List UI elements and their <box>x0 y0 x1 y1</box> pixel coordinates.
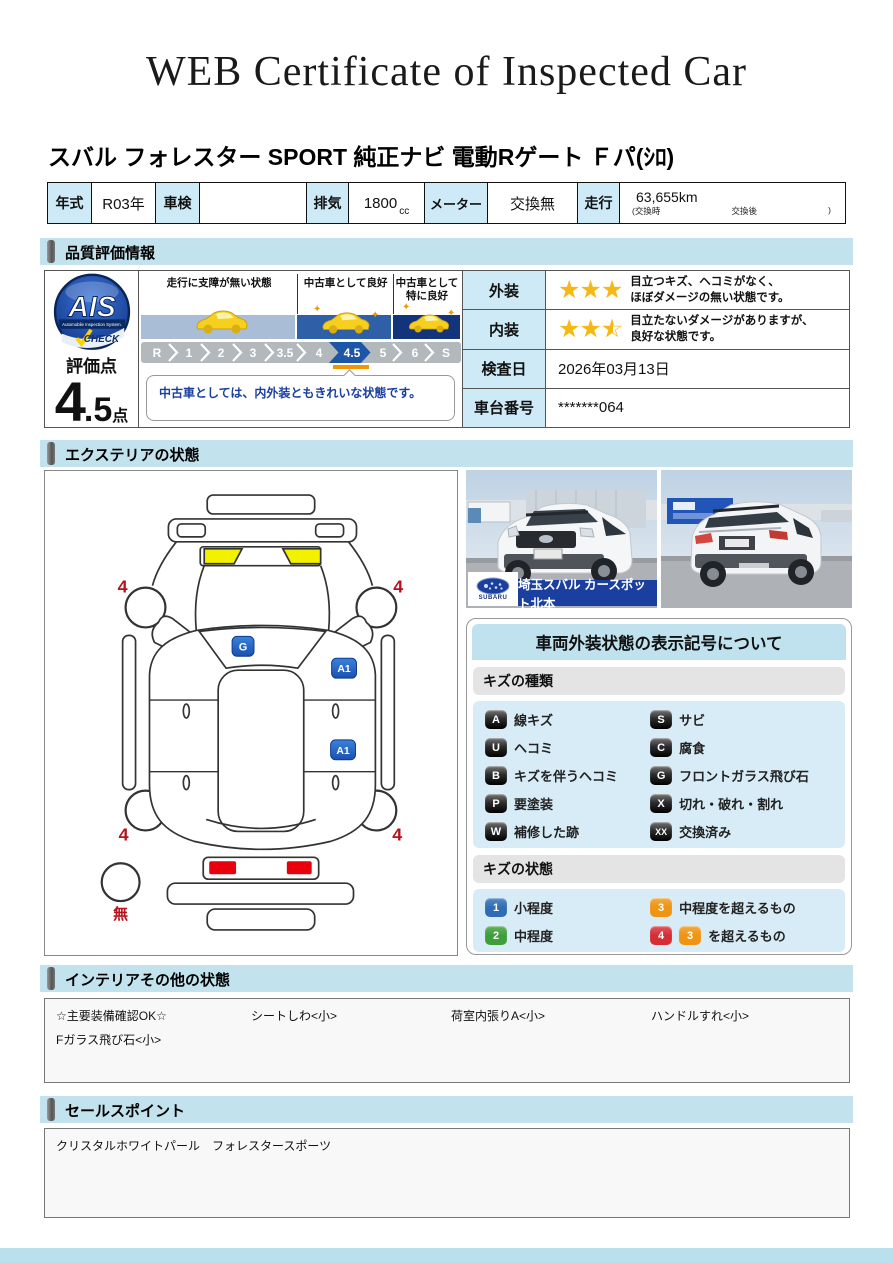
spare-tire-mark: 無 <box>113 905 128 923</box>
interior-text-line1: 目立たないダメージがありますが、 <box>630 315 813 327</box>
ais-score-panel: AIS Automobile Inspection System. CHECK … <box>45 271 139 427</box>
legend-item: A線キズ <box>485 710 650 729</box>
grade-tick: 3.5 <box>277 346 294 360</box>
grade-tick: 3 <box>250 346 257 360</box>
vin-value: *******064 <box>546 389 849 427</box>
glass-damage-badge: G <box>239 641 248 653</box>
exterior-rating-row: 外装 ★★★ 目立つキズ、ヘコミがなく、 ほぼダメージの無い状態です。 <box>463 271 849 310</box>
severity-badge: 3 <box>679 926 701 945</box>
tire-mark-rear-left: 4 <box>119 824 129 844</box>
dealer-caption: 埼玉スバル カースポット北本 <box>518 580 657 606</box>
damage-code-badge: W <box>485 822 507 841</box>
legend-item: Uヘコミ <box>485 738 650 757</box>
spec-table: 年式 R03年 車検 排気 1800 cc メーター 交換無 走行 63,655… <box>47 182 846 224</box>
legend-item-label: 線キズ <box>514 710 553 729</box>
interior-stars: ★★☆★ <box>558 317 622 342</box>
spec-inspection-value <box>200 183 307 223</box>
zone-label-2: 中古車として良好 <box>297 274 393 314</box>
vehicle-photos: SUBARU 埼玉スバル カースポット北本 <box>466 470 852 608</box>
mileage-note-mid: 交換後 <box>731 205 757 217</box>
sparkle-icon: ✦ <box>439 326 446 334</box>
star-icon: ★ <box>558 278 579 303</box>
grade-scale-bar: R 1 2 3 3.5 4 4.5 5 6 S <box>141 342 461 363</box>
spec-year-value: R03年 <box>92 183 156 223</box>
mileage-value: 63,655km <box>636 189 837 205</box>
section-title-interior: インテリアその他の状態 <box>65 969 230 990</box>
legend-item: W補修した跡 <box>485 822 650 841</box>
damage-code-badge: P <box>485 794 507 813</box>
ais-check-text: CHECK <box>83 334 119 345</box>
legend-item: P要塗装 <box>485 794 650 813</box>
spec-displacement-label: 排気 <box>307 183 349 223</box>
displacement-number: 1800 <box>364 195 397 212</box>
severity-badge: 1 <box>485 898 507 917</box>
interior-item: 荷室内張りA<小> <box>451 1007 651 1024</box>
grade-tick: 1 <box>186 346 193 360</box>
interior-items-row1: ☆主要装備確認OK☆ シートしわ<小> 荷室内張りA<小> ハンドルすれ<小> <box>56 1007 849 1024</box>
ais-logo-subtitle: Automobile Inspection System. <box>62 322 122 327</box>
legend-item-label: 腐食 <box>679 738 705 757</box>
car-top-view-svg: G A1 A1 4 4 4 4 無 <box>45 471 457 955</box>
sales-point-text: クリスタルホワイトパール フォレスタースポーツ <box>56 1139 331 1153</box>
spec-year-label: 年式 <box>48 183 92 223</box>
section-accent-bar <box>47 442 55 465</box>
side-damage-badge-2: A1 <box>336 746 350 757</box>
section-title-sales: セールスポイント <box>65 1100 185 1121</box>
legend-item-label: 要塗装 <box>514 794 553 813</box>
section-title-exterior: エクステリアの状態 <box>65 444 200 465</box>
legend-states-list: 1小程度 3中程度を超えるもの 2中程度 43を超えるもの <box>473 889 845 952</box>
ais-logo-text: AIS <box>67 291 115 323</box>
damage-symbol-legend: 車両外装状態の表示記号について キズの種類 A線キズ Sサビ Uヘコミ C腐食 … <box>466 618 852 955</box>
spec-displacement-value: 1800 cc <box>349 183 425 223</box>
damage-code-badge: X <box>650 794 672 813</box>
grade-tick: 2 <box>218 346 225 360</box>
legend-item-label: 交換済み <box>679 822 731 841</box>
severity-badge: 2 <box>485 926 507 945</box>
rear-photo-illustration <box>661 470 852 608</box>
mileage-note-close: ) <box>828 205 831 217</box>
side-damage-badge-1: A1 <box>337 664 351 675</box>
grade-scale-panel: 走行に支障が無い状態 中古車として良好 中古車として特に良好 ✦ ✦ ✦ ✦ ✦ <box>139 271 463 427</box>
inspection-date-label: 検査日 <box>463 350 546 388</box>
score-decimal: .5 <box>84 395 112 426</box>
vehicle-photo-rear <box>661 470 852 608</box>
grade-zone-labels: 走行に支障が無い状態 中古車として良好 中古車として特に良好 <box>141 274 460 314</box>
legend-item-label: ヘコミ <box>514 738 553 757</box>
legend-item: Bキズを伴うヘコミ <box>485 766 650 785</box>
subaru-logo-text: SUBARU <box>479 595 508 601</box>
mileage-note-open: (交換時 <box>632 205 660 217</box>
exterior-rating-text: 目立つキズ、ヘコミがなく、 ほぼダメージの無い状態です。 <box>630 274 789 306</box>
car-damage-diagram: G A1 A1 4 4 4 4 無 <box>44 470 458 956</box>
grade-tick: 5 <box>380 346 387 360</box>
section-accent-bar <box>47 967 55 990</box>
spec-inspection-label: 車検 <box>156 183 200 223</box>
damage-code-badge: C <box>650 738 672 757</box>
legend-item: 1小程度 <box>485 898 650 917</box>
grade-tick-selected: 4.5 <box>344 346 361 360</box>
score-value: 4 .5 点 <box>55 377 129 427</box>
exterior-rating-value: ★★★ 目立つキズ、ヘコミがなく、 ほぼダメージの無い状態です。 <box>546 271 849 309</box>
inspection-date-value: 2026年03月13日 <box>546 350 849 388</box>
spec-mileage-value: 63,655km (交換時 交換後 ) <box>620 183 845 223</box>
legend-item: XX交換済み <box>650 822 835 841</box>
zone-car-icon-1 <box>194 309 250 335</box>
legend-item: Gフロントガラス飛び石 <box>650 766 835 785</box>
legend-item: 2中程度 <box>485 926 650 945</box>
displacement-unit: cc <box>399 206 409 217</box>
interior-rating-label: 内装 <box>463 310 546 348</box>
grade-tick: 6 <box>412 346 419 360</box>
section-header-exterior: エクステリアの状態 <box>40 440 853 467</box>
interior-items-row2: Fガラス飛び石<小> <box>56 1031 849 1048</box>
legend-title: 車両外装状態の表示記号について <box>472 624 846 660</box>
damage-code-badge: G <box>650 766 672 785</box>
certificate-page: WEB Certificate of Inspected Car スバル フォレ… <box>0 0 893 1263</box>
damage-code-badge: XX <box>650 822 672 841</box>
tire-mark-front-left: 4 <box>118 577 128 597</box>
score-integer: 4 <box>55 377 84 427</box>
star-icon: ★ <box>558 317 579 342</box>
exterior-stars: ★★★ <box>558 278 622 303</box>
grade-tick: R <box>153 346 162 360</box>
legend-item-label: 中程度 <box>514 926 553 945</box>
legend-item: 43を超えるもの <box>650 926 835 945</box>
severity-badge: 3 <box>650 898 672 917</box>
damage-code-badge: B <box>485 766 507 785</box>
damage-code-badge: A <box>485 710 507 729</box>
half-star-icon: ☆★ <box>601 317 622 342</box>
legend-item-label: 切れ・破れ・割れ <box>679 794 783 813</box>
interior-rating-value: ★★☆★ 目立たないダメージがありますが、 良好な状態です。 <box>546 310 849 348</box>
vin-label: 車台番号 <box>463 389 546 427</box>
exterior-text-line2: ほぼダメージの無い状態です。 <box>630 292 789 304</box>
legend-item-label: 補修した跡 <box>514 822 579 841</box>
section-header-quality: 品質評価情報 <box>40 238 853 265</box>
legend-kinds-header: キズの種類 <box>473 667 845 695</box>
vin-row: 車台番号 *******064 <box>463 389 849 427</box>
car-title: スバル フォレスター SPORT 純正ナビ 電動Rゲート Ｆパ(ｼﾛ) <box>48 138 674 172</box>
severity-badge: 4 <box>650 926 672 945</box>
star-icon: ★ <box>579 278 600 303</box>
mileage-note: (交換時 交換後 ) <box>632 205 837 217</box>
page-title: WEB Certificate of Inspected Car <box>0 48 893 96</box>
grade-tick: S <box>442 346 450 360</box>
legend-item: Sサビ <box>650 710 835 729</box>
quality-detail-table: 外装 ★★★ 目立つキズ、ヘコミがなく、 ほぼダメージの無い状態です。 内装 ★… <box>463 271 849 427</box>
vehicle-photo-front: SUBARU 埼玉スバル カースポット北本 <box>466 470 657 608</box>
sparkle-icon: ✦ <box>313 305 321 315</box>
interior-rating-row: 内装 ★★☆★ 目立たないダメージがありますが、 良好な状態です。 <box>463 310 849 349</box>
sparkle-icon: ✦ <box>371 311 379 321</box>
zone-car-icon-2 <box>320 311 372 335</box>
section-accent-bar <box>47 1098 55 1121</box>
legend-item-label: 小程度 <box>514 898 553 917</box>
selected-grade-marker <box>333 365 369 369</box>
tire-mark-rear-right: 4 <box>392 824 402 844</box>
interior-item: Fガラス飛び石<小> <box>56 1033 161 1047</box>
sales-point-box: クリスタルホワイトパール フォレスタースポーツ <box>44 1128 850 1218</box>
grade-tick: 4 <box>316 346 323 360</box>
subaru-logo-mark <box>476 577 510 595</box>
legend-item-label: キズを伴うヘコミ <box>514 766 618 785</box>
damage-code-badge: S <box>650 710 672 729</box>
spec-meter-value: 交換無 <box>488 183 578 223</box>
exterior-text-line1: 目立つキズ、ヘコミがなく、 <box>630 276 780 288</box>
legend-kinds-list: A線キズ Sサビ Uヘコミ C腐食 Bキズを伴うヘコミ Gフロントガラス飛び石 … <box>473 701 845 848</box>
section-header-sales: セールスポイント <box>40 1096 853 1123</box>
interior-text-line2: 良好な状態です。 <box>630 331 721 343</box>
quality-evaluation-box: AIS Automobile Inspection System. CHECK … <box>44 270 850 428</box>
star-icon: ★ <box>579 317 600 342</box>
legend-item-label: を超えるもの <box>708 926 786 945</box>
exterior-rating-label: 外装 <box>463 271 546 309</box>
legend-states-header: キズの状態 <box>473 855 845 883</box>
legend-item: C腐食 <box>650 738 835 757</box>
subaru-logo: SUBARU <box>468 572 518 606</box>
grade-comment: 中古車としては、内外装ともきれいな状態です。 <box>146 375 455 421</box>
ais-logo: AIS Automobile Inspection System. CHECK <box>50 271 134 351</box>
interior-item: ☆主要装備確認OK☆ <box>56 1007 251 1024</box>
sparkle-icon: ✦ <box>402 303 410 313</box>
interior-item: ハンドルすれ<小> <box>651 1007 849 1024</box>
star-icon: ★ <box>601 278 622 303</box>
sparkle-icon: ✦ <box>447 309 455 319</box>
damage-code-badge: U <box>485 738 507 757</box>
interior-item: シートしわ<小> <box>251 1007 451 1024</box>
legend-item: 3中程度を超えるもの <box>650 898 835 917</box>
zone-label-1: 走行に支障が無い状態 <box>141 274 297 314</box>
tire-mark-front-right: 4 <box>393 577 403 597</box>
score-unit: 点 <box>112 410 128 424</box>
spec-mileage-label: 走行 <box>578 183 620 223</box>
legend-item-label: サビ <box>679 710 705 729</box>
legend-item-label: フロントガラス飛び石 <box>679 766 809 785</box>
footer-bar <box>0 1248 893 1263</box>
interior-condition-box: ☆主要装備確認OK☆ シートしわ<小> 荷室内張りA<小> ハンドルすれ<小> … <box>44 998 850 1083</box>
legend-item: X切れ・破れ・割れ <box>650 794 835 813</box>
inspection-date-row: 検査日 2026年03月13日 <box>463 350 849 389</box>
section-title-quality: 品質評価情報 <box>65 242 155 263</box>
legend-item-label: 中程度を超えるもの <box>679 898 796 917</box>
spec-meter-label: メーター <box>425 183 488 223</box>
section-accent-bar <box>47 240 55 263</box>
section-header-interior: インテリアその他の状態 <box>40 965 853 992</box>
interior-rating-text: 目立たないダメージがありますが、 良好な状態です。 <box>630 313 813 345</box>
